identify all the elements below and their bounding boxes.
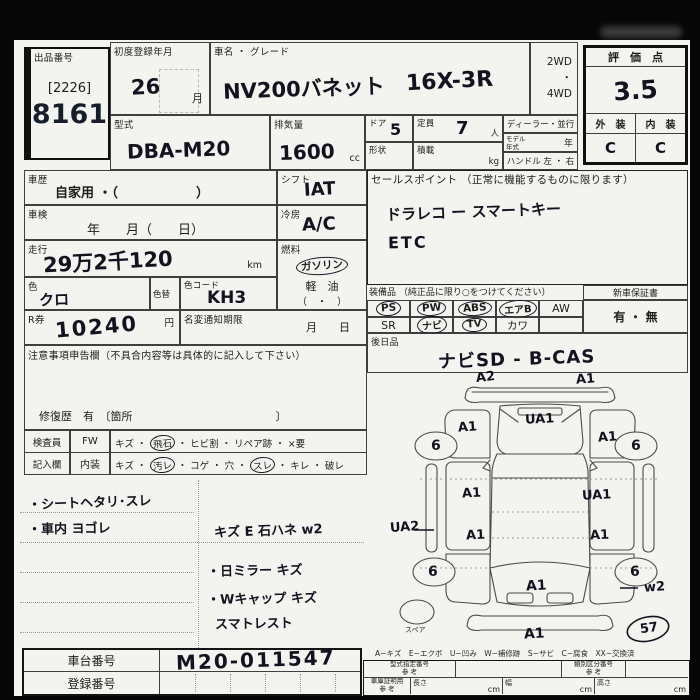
notes-rule-2 bbox=[20, 542, 364, 543]
mark-front-left-tire: 6 bbox=[431, 438, 441, 454]
interior-items-mid: ・ コゲ ・ 穴 ・ bbox=[178, 461, 247, 472]
note-mirror-scratch: ・日ミラー キズ bbox=[207, 559, 303, 580]
car-name-value: NV200バネット bbox=[223, 70, 386, 106]
equip-tv: TV bbox=[453, 317, 496, 333]
score-value: 3.5 bbox=[585, 64, 687, 117]
warranty-value: 有 ・ 無 bbox=[583, 300, 688, 333]
capacity-unit: 人 bbox=[490, 127, 499, 139]
mark-rear-bumper: A1 bbox=[524, 625, 545, 642]
auction-number: 8161 bbox=[31, 99, 108, 130]
inspector-head-1: 検査員 bbox=[24, 430, 70, 453]
first-registration-cell: 初度登録年月 26 月 bbox=[110, 42, 210, 115]
registration-label: 登録番号 bbox=[24, 672, 160, 694]
auction-bracket: [2226] bbox=[31, 81, 108, 96]
mark-left-sill: UA2 bbox=[390, 519, 420, 536]
chassis-table: 車台番号 M20-011547 登録番号 bbox=[22, 648, 362, 696]
inspector-sign: 57 bbox=[639, 620, 659, 637]
color-code-cell: 色コード KH3 bbox=[180, 277, 277, 310]
equipment-header: 装備品 （純正品に限り○をつけてください） bbox=[367, 285, 583, 300]
mark-front-right-tire: 6 bbox=[631, 438, 641, 454]
r-ticket-cell: R券 10240 円 bbox=[24, 310, 180, 345]
equip-pw: PW bbox=[410, 300, 453, 317]
model-code-cell: 型式 DBA-M20 bbox=[110, 115, 270, 170]
doors-label: ドア bbox=[369, 117, 387, 129]
mark-right-quarter: w2 bbox=[644, 579, 666, 595]
inspector-fw-items: キズ ・ 飛石 ・ ヒビ割 ・ リペア跡 ・ ×要 bbox=[110, 430, 367, 453]
r-ticket-value: 10240 bbox=[54, 311, 139, 342]
mileage-unit: km bbox=[247, 260, 262, 271]
handle-cell: ハンドル 左 ・ 右 bbox=[503, 152, 578, 170]
fuel-diesel: 軽 油 bbox=[278, 278, 366, 294]
drive-type-cell: 2WD ・ 4WD bbox=[530, 42, 578, 115]
chassis-label: 車台番号 bbox=[24, 650, 160, 672]
mark-left-front-fender: A1 bbox=[458, 419, 478, 435]
grade-value: 16X-3R bbox=[405, 67, 493, 97]
sales-point-label: セールスポイント （正常に機能するものに限ります） bbox=[371, 172, 634, 187]
warranty-label: 新車保証書 bbox=[583, 285, 688, 300]
sales-point-line2: ETC bbox=[388, 233, 428, 253]
note-rest: スマトレスト bbox=[215, 612, 293, 632]
ac-cell: 冷房 A/C bbox=[277, 205, 367, 240]
spare-tire-label: スペア bbox=[405, 625, 426, 635]
inspector-fw-label: FW bbox=[70, 430, 110, 453]
displacement-label: 排気量 bbox=[274, 117, 303, 131]
length-cell: 長さ cm bbox=[411, 678, 503, 694]
inspector-table: 検査員 FW キズ ・ 飛石 ・ ヒビ割 ・ リペア跡 ・ ×要 記入欄 内装 … bbox=[24, 430, 367, 475]
later-items-value: ナビSD - B-CAS bbox=[438, 342, 596, 373]
history-label: 車歴 bbox=[28, 172, 48, 186]
fuel-gasoline-circled: ガソリン bbox=[295, 255, 348, 277]
mark-left-door-2: A1 bbox=[466, 528, 486, 544]
history-cell: 車歴 自家用 ・（ ） bbox=[24, 170, 277, 205]
inspection-cell: 車検 年 月（ 日） bbox=[24, 205, 277, 240]
mark-front-bumper-right: A1 bbox=[576, 371, 596, 387]
chassis-value-cell: M20-011547 bbox=[160, 650, 360, 672]
shift-value: IAT bbox=[303, 178, 336, 201]
color-code-value: KH3 bbox=[207, 288, 246, 308]
load-unit: kg bbox=[489, 157, 499, 167]
doors-cell: ドア 5 bbox=[365, 115, 413, 142]
capacity-label: 定員 bbox=[417, 117, 435, 129]
load-cell: 積載 kg bbox=[413, 142, 503, 170]
car-name-label: 車名 ・ グレード bbox=[214, 44, 289, 58]
note-wheelcap-scratch: ・Wキャップ キズ bbox=[207, 587, 317, 608]
width-unit: cm bbox=[580, 685, 592, 694]
ac-value: A/C bbox=[302, 213, 336, 235]
interior-items-post: ・ キレ ・ 破レ bbox=[278, 461, 344, 472]
sheet: 出品番号 [2226] 8161 初度登録年月 26 月 車名 ・ グレード N… bbox=[14, 40, 690, 696]
notice-label: 注意事項申告欄（不具合内容等は具体的に記入して下さい） bbox=[28, 347, 306, 362]
type-designation-table: 型式指定番号 参 考 類別区分番号 参 考 車庫証明用 参 考 長さ cm 幅 … bbox=[363, 660, 690, 696]
car-name-cell: 車名 ・ グレード NV200バネット 16X-3R bbox=[210, 42, 530, 115]
class-number-value bbox=[626, 661, 688, 678]
equip-airbag-text: エアB bbox=[498, 298, 537, 319]
fw-items-pre: キズ ・ bbox=[115, 439, 147, 450]
equip-airbag: エアB bbox=[496, 300, 539, 317]
auction-sheet-scan: 出品番号 [2226] 8161 初度登録年月 26 月 車名 ・ グレード N… bbox=[0, 0, 700, 700]
inspector-head-2: 記入欄 bbox=[24, 452, 70, 475]
ac-label: 冷房 bbox=[281, 207, 301, 221]
displacement-cell: 排気量 1600 cc bbox=[270, 115, 365, 170]
sales-point-line1: ドラレコ ー スマートキー bbox=[386, 198, 562, 225]
doors-value: 5 bbox=[390, 120, 401, 139]
r-ticket-label: R券 bbox=[28, 312, 45, 326]
equip-ps: PS bbox=[367, 300, 410, 317]
fuel-cell: 燃料 ガソリン 軽 油 （ ・ ） bbox=[277, 240, 367, 310]
auction-number-label: 出品番号 bbox=[34, 50, 73, 64]
auction-number-box: 出品番号 [2226] 8161 bbox=[24, 47, 110, 160]
height-unit: cm bbox=[674, 685, 686, 694]
width-cell: 幅 cm bbox=[503, 678, 595, 694]
registration-value-cell bbox=[160, 672, 360, 694]
height-label: 高さ bbox=[597, 678, 611, 688]
mark-rear-left-tire: 6 bbox=[428, 564, 438, 580]
color-change-label: 色替 bbox=[153, 288, 170, 300]
shape-cell: 形状 bbox=[365, 142, 413, 170]
color-value: クロ bbox=[39, 288, 70, 310]
name-change-cell: 名変通知期限 月 日 bbox=[180, 310, 367, 345]
equip-navi: ナビ bbox=[410, 317, 453, 333]
capacity-cell: 定員 7 人 bbox=[413, 115, 503, 142]
equip-tv-text: TV bbox=[462, 317, 487, 333]
length-unit: cm bbox=[488, 685, 500, 694]
first-registration-label: 初度登録年月 bbox=[114, 44, 173, 58]
note-scratch-dent: キズ E 石ハネ w2 bbox=[214, 518, 323, 541]
equip-abs-text: ABS bbox=[457, 300, 492, 317]
equip-pw-text: PW bbox=[416, 300, 446, 317]
displacement-value: 1600 bbox=[279, 139, 335, 165]
month-suffix: 月 bbox=[192, 90, 203, 106]
mark-rear-right-tire: 6 bbox=[630, 564, 640, 580]
width-label: 幅 bbox=[505, 678, 512, 688]
inspector-interior-label: 内装 bbox=[70, 452, 110, 475]
model-year-suffix: 年 bbox=[564, 136, 573, 149]
r-ticket-unit: 円 bbox=[164, 315, 174, 329]
equip-sr: SR bbox=[367, 317, 410, 333]
name-change-label: 名変通知期限 bbox=[184, 312, 243, 326]
sales-point-box: セールスポイント （正常に機能するものに限ります） ドラレコ ー スマートキー … bbox=[367, 170, 688, 285]
equip-leather: カワ bbox=[496, 317, 539, 333]
mark-left-door: A1 bbox=[462, 486, 482, 502]
height-cell: 高さ cm bbox=[595, 678, 688, 694]
model-code-value: DBA-M20 bbox=[127, 136, 231, 164]
notes-rule-4 bbox=[20, 602, 194, 603]
damage-legend: A−キズ E−エクボ U−凹み W−補修跡 S−サビ C−腐食 XX−交換済 bbox=[375, 648, 690, 659]
car-damage-diagram: A2 A1 UA1 A1 A1 6 6 A1 UA1 A1 A1 UA2 6 6… bbox=[390, 372, 690, 650]
color-cell: 色 クロ bbox=[24, 277, 150, 310]
repair-history-line: 修復歴 有 〔箇所 〕 bbox=[39, 408, 287, 424]
later-items-box: 後日品 ナビSD - B-CAS bbox=[367, 333, 688, 373]
interior-item-circled-2: スレ bbox=[249, 456, 275, 474]
first-registration-value: 26 bbox=[130, 74, 160, 99]
mark-rear-gate: A1 bbox=[526, 577, 547, 594]
history-value: 自家用 ・（ ） bbox=[55, 182, 209, 201]
color-label: 色 bbox=[28, 279, 38, 293]
equip-empty bbox=[539, 317, 583, 333]
later-items-label: 後日品 bbox=[371, 335, 399, 348]
notice-box: 注意事項申告欄（不具合内容等は具体的に記入して下さい） 修復歴 有 〔箇所 〕 bbox=[24, 345, 367, 430]
dealer-parallel-cell: ディーラー・並行 bbox=[503, 115, 578, 133]
notes-rule-5 bbox=[20, 632, 194, 633]
scan-smudge bbox=[600, 26, 682, 38]
note-interior-dirt: ・車内 ヨゴレ bbox=[28, 517, 111, 537]
mileage-value: 29万2千120 bbox=[42, 243, 173, 280]
equip-abs: ABS bbox=[453, 300, 496, 317]
equip-aw: AW bbox=[539, 300, 583, 317]
score-box: 評 価 点 3.5 外 装 内 装 C C bbox=[583, 45, 688, 165]
mark-right-side: UA1 bbox=[582, 487, 612, 504]
inspector-interior-items: キズ ・ 汚レ ・ コゲ ・ 穴 ・ スレ ・ キレ ・ 破レ bbox=[110, 452, 367, 475]
displacement-unit: cc bbox=[350, 153, 360, 164]
exterior-label: 外 装 bbox=[586, 113, 636, 134]
mark-front-bumper-left: A2 bbox=[475, 369, 496, 386]
garage-cert-label: 車庫証明用 参 考 bbox=[364, 678, 411, 694]
color-change-cell: 色替 bbox=[150, 277, 180, 310]
interior-item-circled-1: 汚レ bbox=[149, 456, 175, 474]
fw-items-post: ・ ヒビ割 ・ リペア跡 ・ ×要 bbox=[178, 439, 306, 450]
mark-right-front-fender: A1 bbox=[598, 429, 618, 445]
exterior-grade: C bbox=[586, 134, 636, 162]
inspection-value: 年 月（ 日） bbox=[87, 219, 204, 238]
inspection-label: 車検 bbox=[28, 207, 48, 221]
note-seat-wear: ・シートヘタリ･スレ bbox=[28, 490, 152, 513]
model-year-label: モデル 年式 bbox=[506, 135, 526, 152]
shape-label: 形状 bbox=[369, 144, 387, 156]
interior-label: 内 装 bbox=[636, 113, 685, 134]
interior-grade: C bbox=[636, 134, 685, 162]
fw-item-circled: 飛石 bbox=[149, 434, 175, 452]
equip-ps-text: PS bbox=[375, 300, 401, 317]
interior-items-pre: キズ ・ bbox=[115, 461, 147, 472]
chassis-value: M20-011547 bbox=[176, 645, 336, 675]
class-number-label: 類別区分番号 参 考 bbox=[562, 661, 626, 678]
model-code-label: 型式 bbox=[114, 117, 134, 131]
mark-right-side-2: A1 bbox=[590, 528, 610, 544]
notes-rule-3 bbox=[20, 572, 194, 573]
notes-divider bbox=[198, 480, 199, 648]
shift-cell: シフト IAT bbox=[277, 170, 367, 205]
load-label: 積載 bbox=[417, 144, 435, 156]
length-label: 長さ bbox=[413, 678, 427, 688]
mark-hood: UA1 bbox=[525, 411, 555, 428]
mileage-cell: 走行 29万2千120 km bbox=[24, 240, 277, 277]
type-designation-label: 型式指定番号 参 考 bbox=[364, 661, 456, 678]
name-change-value: 月 日 bbox=[306, 319, 350, 335]
model-year-cell: モデル 年式 年 bbox=[503, 133, 578, 152]
fuel-other: （ ・ ） bbox=[278, 293, 366, 308]
type-designation-value bbox=[456, 661, 562, 678]
capacity-value: 7 bbox=[456, 118, 469, 139]
